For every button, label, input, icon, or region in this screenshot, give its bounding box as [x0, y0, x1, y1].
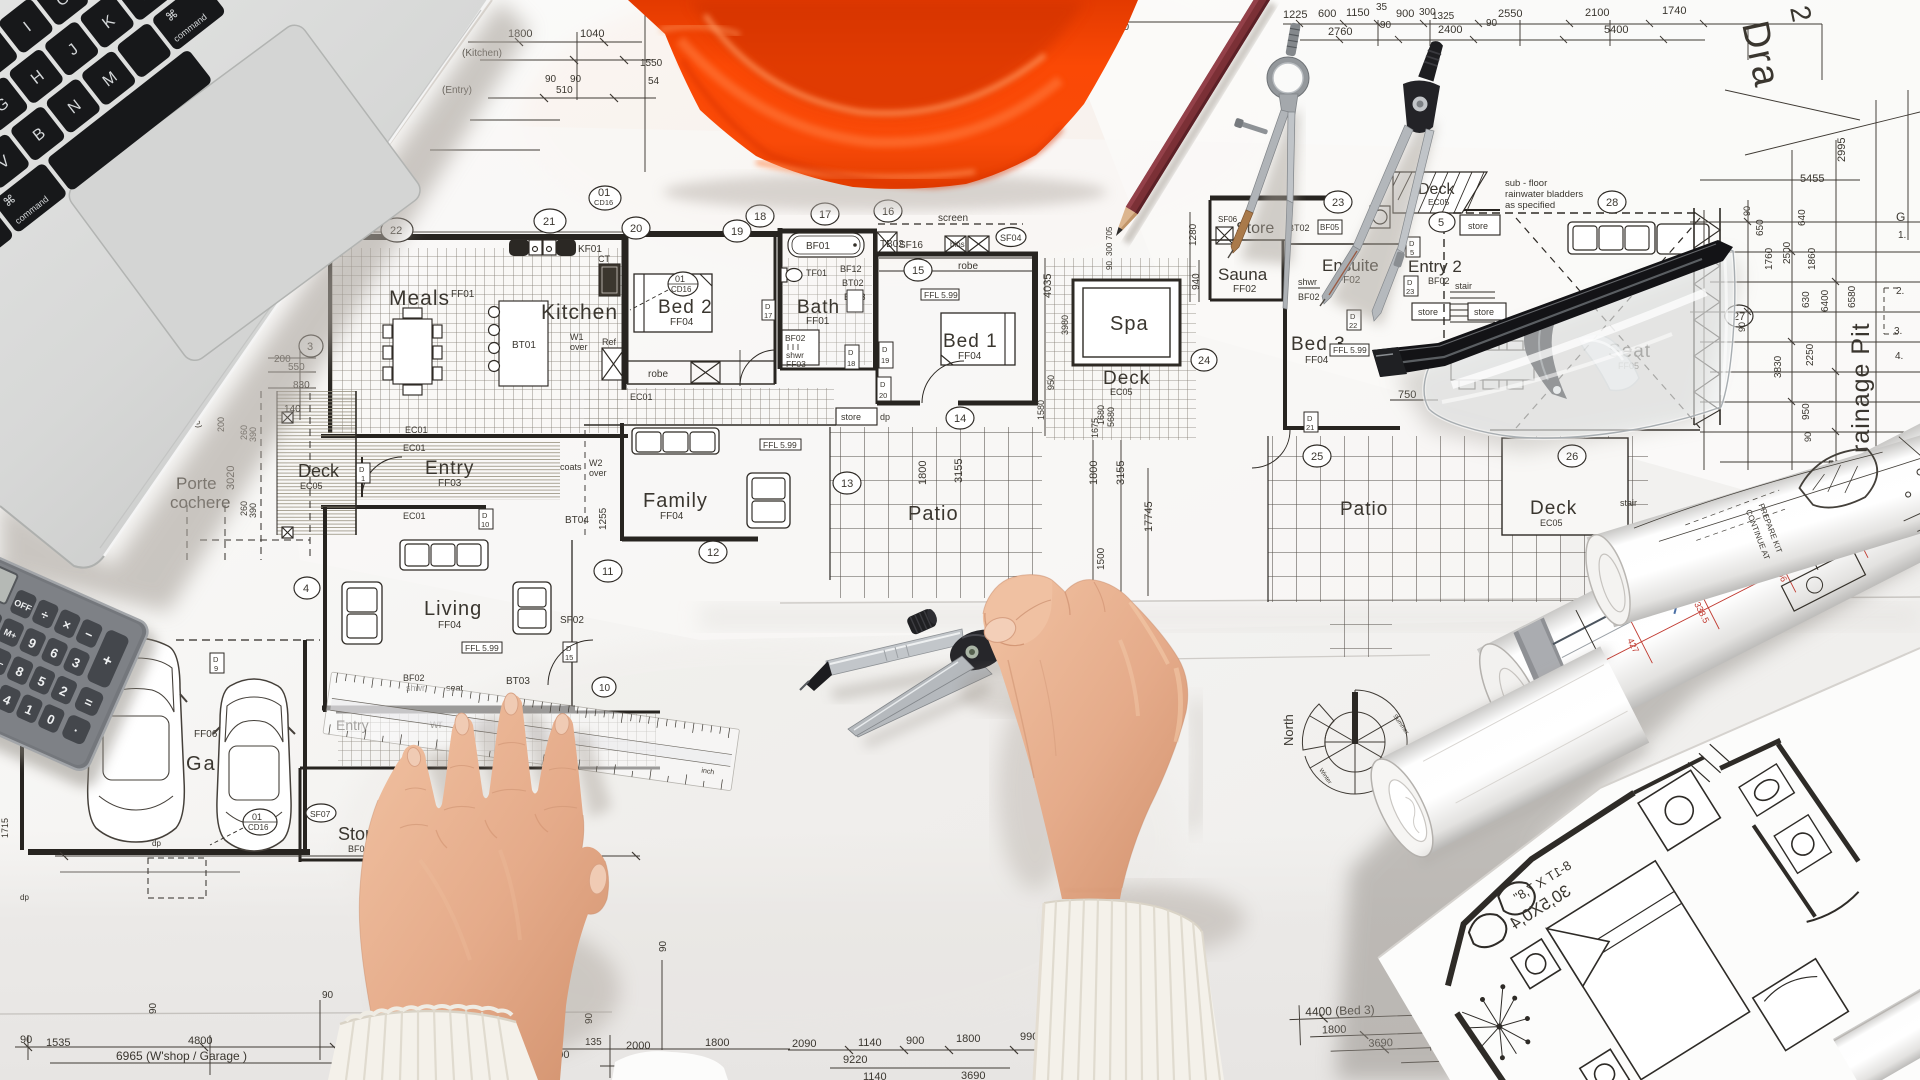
- svg-text:BF02: BF02: [403, 673, 425, 683]
- svg-text:1675: 1675: [1090, 418, 1100, 438]
- svg-text:1280: 1280: [1188, 223, 1199, 246]
- svg-text:1740: 1740: [1662, 5, 1686, 17]
- svg-text:650: 650: [1755, 219, 1766, 236]
- svg-text:as specified: as specified: [1505, 200, 1555, 211]
- svg-text:5: 5: [1410, 248, 1414, 257]
- svg-text:5455: 5455: [1800, 173, 1824, 185]
- svg-text:SF04: SF04: [1000, 233, 1022, 243]
- svg-text:20: 20: [630, 223, 642, 235]
- svg-text:1760: 1760: [1764, 247, 1775, 270]
- svg-text:FF03: FF03: [438, 478, 462, 489]
- svg-text:01: 01: [675, 274, 685, 284]
- svg-text:dp: dp: [880, 412, 890, 422]
- svg-text:3690: 3690: [961, 1070, 985, 1080]
- svg-text:North: North: [1281, 714, 1296, 746]
- svg-text:19: 19: [731, 226, 743, 238]
- svg-text:FF04: FF04: [958, 351, 982, 362]
- svg-text:1040: 1040: [580, 28, 604, 40]
- svg-text:1550: 1550: [640, 58, 663, 69]
- svg-text:10: 10: [481, 520, 489, 529]
- svg-text:510: 510: [556, 85, 573, 96]
- svg-text:over: over: [589, 468, 607, 478]
- svg-text:9: 9: [214, 664, 218, 673]
- svg-text:CD16: CD16: [594, 198, 613, 207]
- svg-text:Bed 1: Bed 1: [943, 331, 998, 352]
- svg-text:1800: 1800: [956, 1033, 980, 1045]
- svg-text:FFL 5.99: FFL 5.99: [924, 290, 958, 300]
- svg-text:Deck: Deck: [298, 461, 340, 481]
- svg-text:coats: coats: [560, 462, 582, 472]
- svg-text:6580: 6580: [1847, 285, 1858, 308]
- svg-text:Bed 2: Bed 2: [658, 297, 713, 318]
- svg-text:900: 900: [1396, 8, 1414, 20]
- svg-text:store: store: [1474, 307, 1494, 317]
- svg-text:BT04: BT04: [565, 515, 589, 526]
- svg-text:Meals: Meals: [389, 287, 450, 310]
- svg-text:24: 24: [1198, 355, 1210, 367]
- svg-text:Living: Living: [424, 598, 482, 620]
- svg-text:Entry 2: Entry 2: [1408, 257, 1462, 276]
- svg-text:BF01: BF01: [806, 241, 830, 252]
- svg-text:90: 90: [570, 74, 582, 85]
- svg-text:CD16: CD16: [248, 823, 269, 832]
- svg-text:23: 23: [1332, 197, 1344, 209]
- svg-text:EC05: EC05: [1110, 387, 1133, 397]
- svg-text:D: D: [880, 380, 886, 389]
- svg-text:01: 01: [252, 812, 262, 822]
- svg-text:rainwater bladders: rainwater bladders: [1505, 189, 1583, 200]
- svg-text:5680: 5680: [1106, 407, 1116, 427]
- svg-text:20: 20: [879, 391, 887, 400]
- svg-text:1800: 1800: [705, 1037, 729, 1049]
- svg-text:1800: 1800: [1088, 461, 1100, 485]
- svg-text:BF02: BF02: [1298, 292, 1320, 302]
- svg-text:Patio: Patio: [1340, 499, 1388, 520]
- svg-text:CD16: CD16: [671, 285, 692, 294]
- svg-text:Patio: Patio: [908, 503, 959, 525]
- svg-text:2250: 2250: [1805, 343, 1816, 366]
- svg-text:2400: 2400: [1438, 24, 1462, 36]
- svg-text:1325: 1325: [1432, 11, 1455, 22]
- svg-text:Ref: Ref: [602, 337, 617, 347]
- svg-text:1150: 1150: [1346, 7, 1370, 19]
- svg-text:Bath: Bath: [797, 297, 840, 318]
- svg-text:1500: 1500: [1096, 547, 1107, 570]
- svg-text:store: store: [1418, 307, 1438, 317]
- svg-text:90: 90: [1737, 322, 1747, 332]
- svg-text:sub - floor: sub - floor: [1505, 178, 1547, 189]
- svg-text:EC05: EC05: [1428, 197, 1450, 207]
- svg-text:15: 15: [912, 265, 924, 277]
- svg-text:screen: screen: [938, 213, 968, 224]
- svg-text:D: D: [1409, 239, 1415, 248]
- svg-text:21: 21: [543, 216, 555, 228]
- svg-text:90: 90: [20, 1034, 32, 1046]
- svg-text:390: 390: [248, 503, 258, 518]
- svg-text:1535: 1535: [46, 1037, 70, 1049]
- svg-text:TF01: TF01: [806, 268, 827, 278]
- svg-text:5400: 5400: [1604, 24, 1628, 36]
- svg-text:EC01: EC01: [405, 425, 428, 435]
- svg-text:14: 14: [954, 413, 966, 425]
- svg-text:SF06: SF06: [1218, 215, 1238, 224]
- svg-text:FFL 5.99: FFL 5.99: [465, 643, 499, 653]
- svg-text:1800: 1800: [917, 461, 929, 485]
- svg-text:over: over: [570, 342, 588, 352]
- svg-text:store: store: [841, 412, 861, 422]
- svg-text:900: 900: [906, 1035, 924, 1047]
- svg-text:2500: 2500: [1782, 241, 1793, 264]
- svg-text:1140: 1140: [858, 1037, 882, 1049]
- svg-text:28: 28: [1606, 197, 1618, 209]
- svg-text:D: D: [482, 511, 488, 520]
- svg-text:bins: bins: [950, 240, 965, 249]
- svg-text:940: 940: [1191, 273, 1202, 290]
- svg-text:D: D: [848, 348, 854, 357]
- svg-text:BF02: BF02: [785, 333, 806, 343]
- svg-text:4.: 4.: [1895, 351, 1903, 362]
- svg-text:SF07: SF07: [310, 809, 331, 819]
- svg-text:CT: CT: [598, 254, 610, 264]
- svg-text:D: D: [882, 345, 888, 354]
- svg-text:18: 18: [754, 211, 766, 223]
- svg-text:SF02: SF02: [560, 615, 584, 626]
- svg-text:robe: robe: [648, 369, 668, 380]
- svg-text:dp: dp: [152, 839, 161, 848]
- svg-text:1715: 1715: [0, 818, 10, 838]
- svg-text:Spa: Spa: [1110, 313, 1149, 335]
- svg-text:FF03: FF03: [786, 359, 806, 369]
- svg-text:2000: 2000: [626, 1040, 650, 1052]
- svg-text:stair: stair: [1620, 498, 1637, 508]
- svg-text:13: 13: [841, 478, 853, 490]
- svg-text:stair: stair: [1455, 281, 1472, 291]
- svg-text:90: 90: [658, 940, 669, 952]
- svg-text:90: 90: [545, 74, 557, 85]
- svg-text:FFL 5.99: FFL 5.99: [763, 440, 797, 450]
- svg-text:90: 90: [1105, 261, 1114, 270]
- svg-text:25: 25: [1311, 451, 1323, 463]
- svg-text:dp: dp: [20, 893, 29, 902]
- svg-text:21: 21: [1306, 423, 1314, 432]
- svg-text:D: D: [1407, 278, 1413, 287]
- svg-text:5: 5: [1438, 217, 1444, 229]
- svg-text:FF04: FF04: [438, 620, 462, 631]
- svg-text:1580: 1580: [1036, 400, 1046, 420]
- svg-text:90: 90: [322, 990, 334, 1001]
- svg-text:1140: 1140: [863, 1071, 887, 1080]
- svg-text:9220: 9220: [843, 1054, 867, 1066]
- svg-text:54: 54: [648, 76, 660, 87]
- svg-text:1.: 1.: [1898, 230, 1906, 241]
- svg-text:90: 90: [1803, 432, 1813, 442]
- svg-text:11: 11: [602, 566, 613, 578]
- svg-text:19: 19: [881, 356, 889, 365]
- svg-text:FF02: FF02: [1233, 284, 1257, 295]
- svg-text:W1: W1: [570, 332, 584, 342]
- svg-text:FFL 5.99: FFL 5.99: [1333, 345, 1367, 355]
- svg-text:18: 18: [847, 359, 855, 368]
- svg-text:Kitchen: Kitchen: [541, 301, 618, 324]
- svg-text:FF04: FF04: [670, 317, 694, 328]
- svg-text:D: D: [359, 465, 365, 474]
- svg-text:TB02: TB02: [880, 239, 904, 250]
- svg-text:12: 12: [707, 547, 719, 559]
- svg-text:store: store: [1468, 221, 1488, 231]
- svg-text:90: 90: [148, 1002, 159, 1014]
- svg-text:10: 10: [599, 683, 611, 694]
- svg-text:Family: Family: [643, 490, 708, 512]
- svg-text:6965 (W'shop / Garage ): 6965 (W'shop / Garage ): [116, 1049, 247, 1063]
- svg-text:600: 600: [1318, 8, 1336, 20]
- svg-text:D: D: [765, 302, 771, 311]
- svg-text:6400: 6400: [1820, 289, 1831, 312]
- svg-text:EC01: EC01: [630, 392, 653, 402]
- svg-text:FF04: FF04: [660, 511, 684, 522]
- svg-text:BT02: BT02: [842, 278, 864, 288]
- svg-text:3830: 3830: [1773, 355, 1784, 378]
- svg-text:BF12: BF12: [840, 264, 862, 274]
- svg-text:90: 90: [1486, 18, 1498, 29]
- svg-text:17: 17: [819, 209, 831, 221]
- svg-text:D: D: [213, 655, 219, 664]
- svg-text:EC05: EC05: [1540, 518, 1563, 528]
- svg-text:4: 4: [303, 583, 309, 595]
- svg-text:Entry: Entry: [425, 458, 474, 479]
- svg-text:1: 1: [361, 474, 365, 483]
- svg-text:BF02: BF02: [1428, 276, 1450, 286]
- svg-text:23: 23: [1406, 287, 1414, 296]
- svg-text:300: 300: [1105, 242, 1114, 256]
- svg-text:FF01: FF01: [806, 316, 830, 327]
- svg-text:90: 90: [1380, 20, 1392, 31]
- svg-text:950: 950: [1046, 375, 1056, 390]
- svg-text:1225: 1225: [1283, 9, 1307, 21]
- svg-text:Deck: Deck: [1418, 181, 1455, 198]
- svg-text:Sauna: Sauna: [1218, 265, 1268, 284]
- svg-text:3980: 3980: [1060, 315, 1070, 335]
- svg-text:BF05: BF05: [1320, 223, 1340, 232]
- svg-text:W2: W2: [589, 458, 603, 468]
- svg-text:15: 15: [565, 653, 573, 662]
- svg-text:FF06: FF06: [194, 729, 218, 740]
- svg-text:4035: 4035: [1042, 274, 1054, 298]
- svg-text:2995: 2995: [1836, 138, 1848, 162]
- svg-text:Deck: Deck: [1530, 498, 1577, 519]
- svg-text:3155: 3155: [953, 459, 965, 483]
- svg-text:Deck: Deck: [1103, 368, 1150, 389]
- svg-text:D: D: [1307, 414, 1313, 423]
- svg-text:FF04: FF04: [1305, 355, 1329, 366]
- svg-text:shwr: shwr: [1298, 277, 1317, 287]
- svg-text:BT01: BT01: [512, 340, 536, 351]
- svg-text:35: 35: [1376, 2, 1388, 13]
- svg-text:22: 22: [1349, 321, 1357, 330]
- svg-text:640: 640: [1797, 209, 1808, 226]
- svg-text:3.: 3.: [1894, 326, 1902, 337]
- svg-text:950: 950: [1801, 403, 1812, 420]
- svg-text:705: 705: [1105, 226, 1114, 240]
- svg-text:17745: 17745: [1143, 501, 1155, 532]
- svg-text:1860: 1860: [1807, 247, 1818, 270]
- svg-text:630: 630: [1801, 291, 1812, 308]
- svg-text:2760: 2760: [1328, 26, 1352, 38]
- svg-text:D: D: [1350, 312, 1356, 321]
- svg-text:135: 135: [585, 1037, 602, 1048]
- svg-text:EC01: EC01: [403, 443, 426, 453]
- svg-text:FF01: FF01: [451, 289, 475, 300]
- svg-text:26: 26: [1566, 451, 1578, 463]
- svg-text:G: G: [1896, 210, 1905, 224]
- svg-text:90: 90: [1742, 206, 1752, 216]
- svg-text:EC01: EC01: [403, 511, 426, 521]
- svg-text:EC05: EC05: [300, 481, 323, 491]
- svg-text:3155: 3155: [1115, 461, 1127, 485]
- svg-text:17: 17: [764, 311, 772, 320]
- svg-text:1255: 1255: [598, 507, 609, 530]
- svg-text:4800: 4800: [188, 1035, 212, 1047]
- svg-text:2090: 2090: [792, 1038, 816, 1050]
- svg-text:robe: robe: [958, 261, 978, 272]
- svg-text:2550: 2550: [1498, 8, 1522, 20]
- svg-text:BT03: BT03: [506, 676, 530, 687]
- svg-text:2100: 2100: [1585, 7, 1609, 19]
